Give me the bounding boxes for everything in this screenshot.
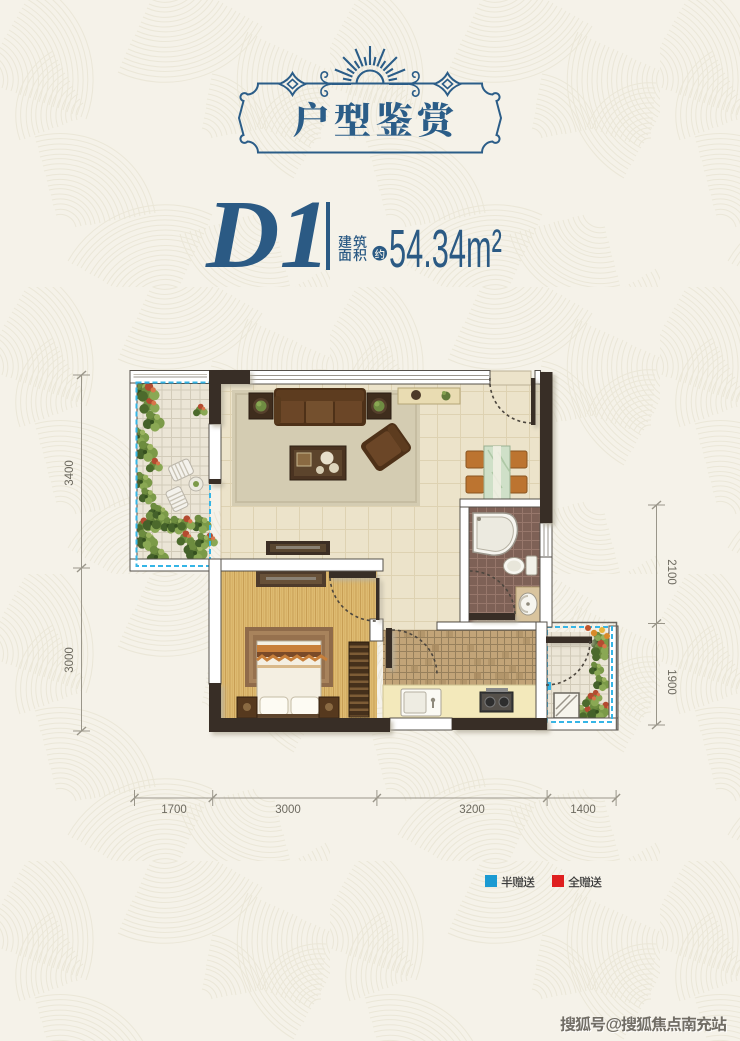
svg-text:3200: 3200: [459, 804, 485, 816]
svg-text:3000: 3000: [275, 804, 301, 816]
svg-text:3400: 3400: [64, 460, 76, 486]
svg-text:3000: 3000: [64, 647, 76, 673]
svg-text:1700: 1700: [161, 804, 187, 816]
svg-text:1900: 1900: [665, 669, 677, 695]
svg-text:2100: 2100: [665, 559, 677, 585]
svg-text:1400: 1400: [570, 804, 596, 816]
svg-text:@: @: [606, 1015, 623, 1034]
